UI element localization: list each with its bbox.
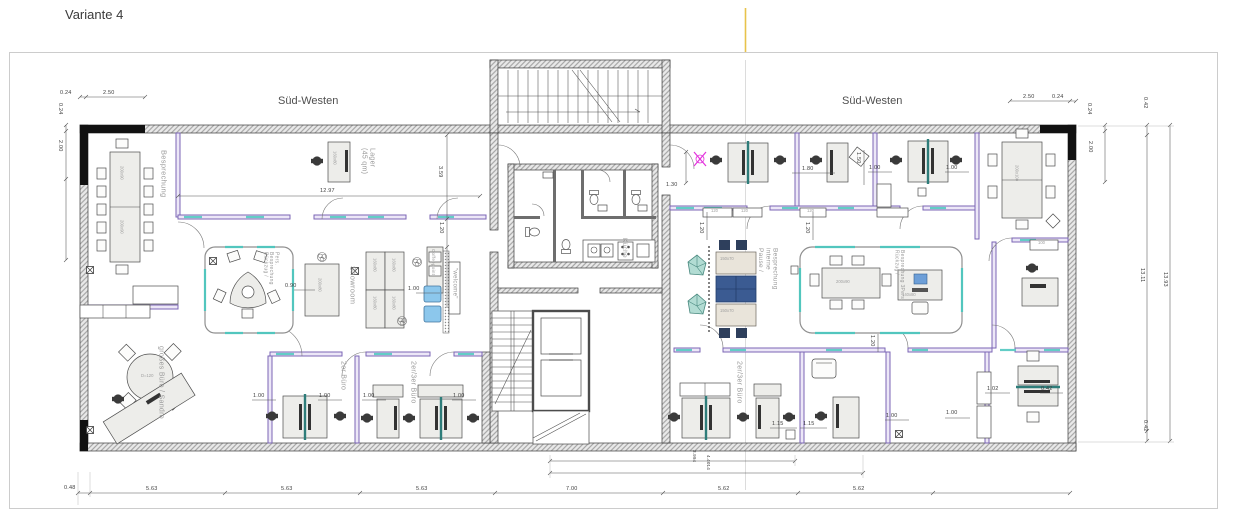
workstation-2er3er-left xyxy=(361,385,479,440)
retreat-room-right xyxy=(791,247,962,333)
lounge-chair-blue xyxy=(424,306,441,322)
cabinet xyxy=(133,286,178,304)
cad-floorplan-viewport: Variante 4 Süd-Westen Süd-Westen Besprec… xyxy=(0,0,1243,520)
lounge-chair-blue xyxy=(424,286,441,302)
sideboard xyxy=(80,305,150,318)
floor-plan-drawing xyxy=(0,0,1243,520)
monitor-blue xyxy=(914,274,927,284)
kitchen-counter xyxy=(583,240,655,262)
retreat-room-left xyxy=(205,247,293,333)
elevator-shaft xyxy=(533,311,589,444)
staircase-bottom xyxy=(492,311,533,411)
staircase-top xyxy=(498,68,662,125)
